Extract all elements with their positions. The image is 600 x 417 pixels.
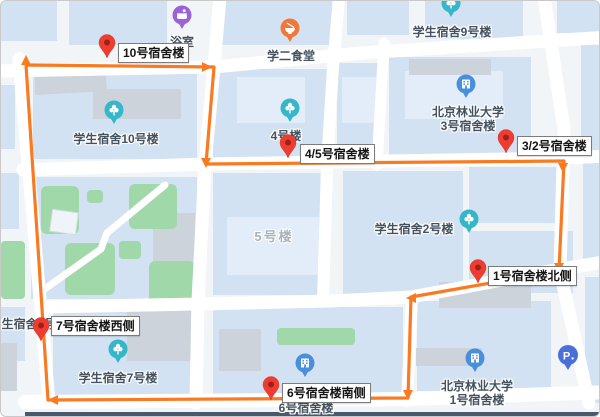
stop-label-dorm10[interactable]: 10号宿舍楼 <box>118 43 189 63</box>
stop-label-dorm32[interactable]: 3/2号宿舍楼 <box>517 136 592 156</box>
poi-pin-canteen[interactable] <box>279 18 301 48</box>
stop-pin-dorm10[interactable] <box>98 34 116 65</box>
poi-label-canteen: 学二食堂 <box>267 49 315 63</box>
red-pin-icon <box>32 317 50 343</box>
stop-pin-dorm7-west[interactable] <box>32 317 50 348</box>
svg-text:P: P <box>563 351 570 363</box>
small-building <box>50 209 79 234</box>
poi-pin-bldg4[interactable] <box>279 98 301 128</box>
poi-label-dorm7: 学生宿舍7号楼 <box>79 371 158 385</box>
stop-pin-dorm32[interactable] <box>497 129 515 160</box>
building-icon <box>301 359 309 368</box>
stop-label-dorm7-west[interactable]: 7号宿舍楼西侧 <box>51 316 140 336</box>
red-pin-icon <box>262 376 280 402</box>
poi-label-bjfu-dorm3: 北京林业大学 3号宿舍楼 <box>432 105 504 133</box>
poi-label-dorm2: 学生宿舍2号楼 <box>375 222 454 236</box>
poi-pin-dorm9[interactable] <box>440 0 462 23</box>
stop-label-dorm6-south[interactable]: 6号宿舍楼南侧 <box>282 383 371 403</box>
poi-pin-bjfu-dorm1[interactable] <box>464 348 486 378</box>
red-pin-icon <box>469 259 487 285</box>
stop-label-dorm1-north[interactable]: 1号宿舍楼北侧 <box>488 266 577 286</box>
poi-pin-dorm6[interactable] <box>294 353 316 383</box>
stop-pin-dorm45[interactable] <box>279 134 297 165</box>
poi-label-bldg5: 5号楼 <box>254 230 293 244</box>
red-pin-icon <box>497 129 515 155</box>
poi-label-dorm9: 学生宿舍9号楼 <box>413 25 492 39</box>
poi-pin-parking[interactable]: P <box>556 344 580 376</box>
poi-pin-dorm2[interactable] <box>458 209 480 239</box>
stop-pin-dorm1-north[interactable] <box>469 259 487 290</box>
red-pin-icon <box>98 34 116 60</box>
stop-pin-dorm6-south[interactable] <box>262 376 280 407</box>
building-icon <box>471 354 479 363</box>
poi-label-dorm6: 6号宿舍楼 <box>279 401 334 415</box>
poi-label-bjfu-dorm1: 北京林业大学 1号宿舍楼 <box>441 379 513 407</box>
poi-pin-bjfu-dorm3[interactable] <box>455 74 477 104</box>
stop-label-dorm45[interactable]: 4/5号宿舍楼 <box>300 144 375 164</box>
poi-pin-dorm7[interactable] <box>107 339 129 369</box>
poi-label-dorm10: 学生宿舍10号楼 <box>73 132 158 146</box>
map-canvas[interactable]: 浴室 学二食堂 学生宿舍9号楼 <box>0 0 600 417</box>
poi-pin-bathhouse[interactable] <box>171 5 193 35</box>
red-pin-icon <box>279 134 297 160</box>
poi-pin-dorm10[interactable] <box>103 100 125 130</box>
building-icon <box>462 80 470 89</box>
